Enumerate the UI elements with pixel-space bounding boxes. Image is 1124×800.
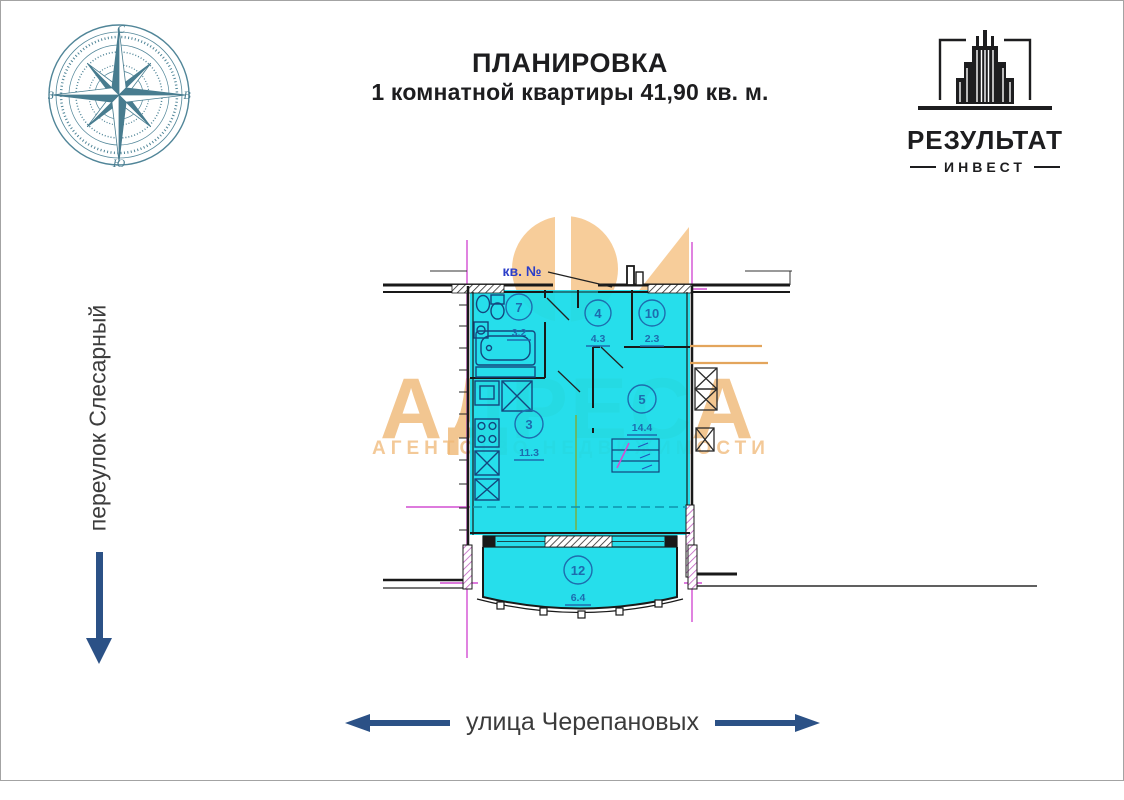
arrow-left-icon bbox=[345, 714, 450, 732]
svg-text:11.3: 11.3 bbox=[519, 447, 539, 459]
compass-east-label: В bbox=[183, 88, 191, 102]
street-label-left: переулок Слесарный bbox=[58, 278, 138, 558]
title-line1: ПЛАНИРОВКА bbox=[280, 48, 860, 79]
svg-text:10: 10 bbox=[645, 306, 659, 321]
logo-dash-left bbox=[910, 166, 936, 168]
arrow-down-head bbox=[86, 638, 112, 664]
svg-text:4.3: 4.3 bbox=[591, 333, 606, 345]
title-line2: 1 комнатной квартиры 41,90 кв. м. bbox=[280, 79, 860, 105]
arrow-down-icon bbox=[86, 552, 112, 664]
compass-south-label: Ю bbox=[112, 156, 126, 170]
logo-subtitle: ИНВЕСТ bbox=[944, 159, 1026, 175]
logo-title: РЕЗУЛЬТАТ bbox=[895, 125, 1075, 156]
svg-text:14.4: 14.4 bbox=[632, 422, 653, 434]
svg-text:4: 4 bbox=[594, 306, 602, 321]
company-logo: РЕЗУЛЬТАТ ИНВЕСТ bbox=[895, 28, 1075, 175]
svg-text:5: 5 bbox=[638, 392, 645, 407]
orange-lines bbox=[690, 346, 768, 363]
compass-north-label: С bbox=[117, 22, 126, 36]
shaft-boxes bbox=[695, 368, 717, 451]
logo-dash-right bbox=[1034, 166, 1060, 168]
building-icon bbox=[910, 28, 1060, 123]
page-title: ПЛАНИРОВКА 1 комнатной квартиры 41,90 кв… bbox=[280, 48, 860, 105]
street-label-bottom: улица Черепановых bbox=[335, 708, 830, 737]
svg-text:12: 12 bbox=[571, 563, 585, 578]
compass-west-label: З bbox=[48, 88, 54, 102]
compass-rose-icon: С Ю З В bbox=[44, 20, 194, 170]
svg-text:6.4: 6.4 bbox=[571, 592, 586, 604]
arrow-right-icon bbox=[715, 714, 820, 732]
svg-text:2.3: 2.3 bbox=[645, 333, 660, 345]
svg-text:7: 7 bbox=[515, 300, 522, 315]
street-left-text: переулок Слесарный bbox=[85, 305, 112, 531]
logo-subtitle-row: ИНВЕСТ bbox=[895, 159, 1075, 175]
svg-text:3: 3 bbox=[525, 417, 532, 432]
compass-star bbox=[52, 28, 186, 162]
street-bottom-text: улица Черепановых bbox=[466, 708, 699, 737]
svg-text:3.2: 3.2 bbox=[512, 327, 527, 339]
apartment-number-label: кв. № bbox=[503, 263, 542, 279]
arrow-down-shaft bbox=[96, 552, 103, 640]
